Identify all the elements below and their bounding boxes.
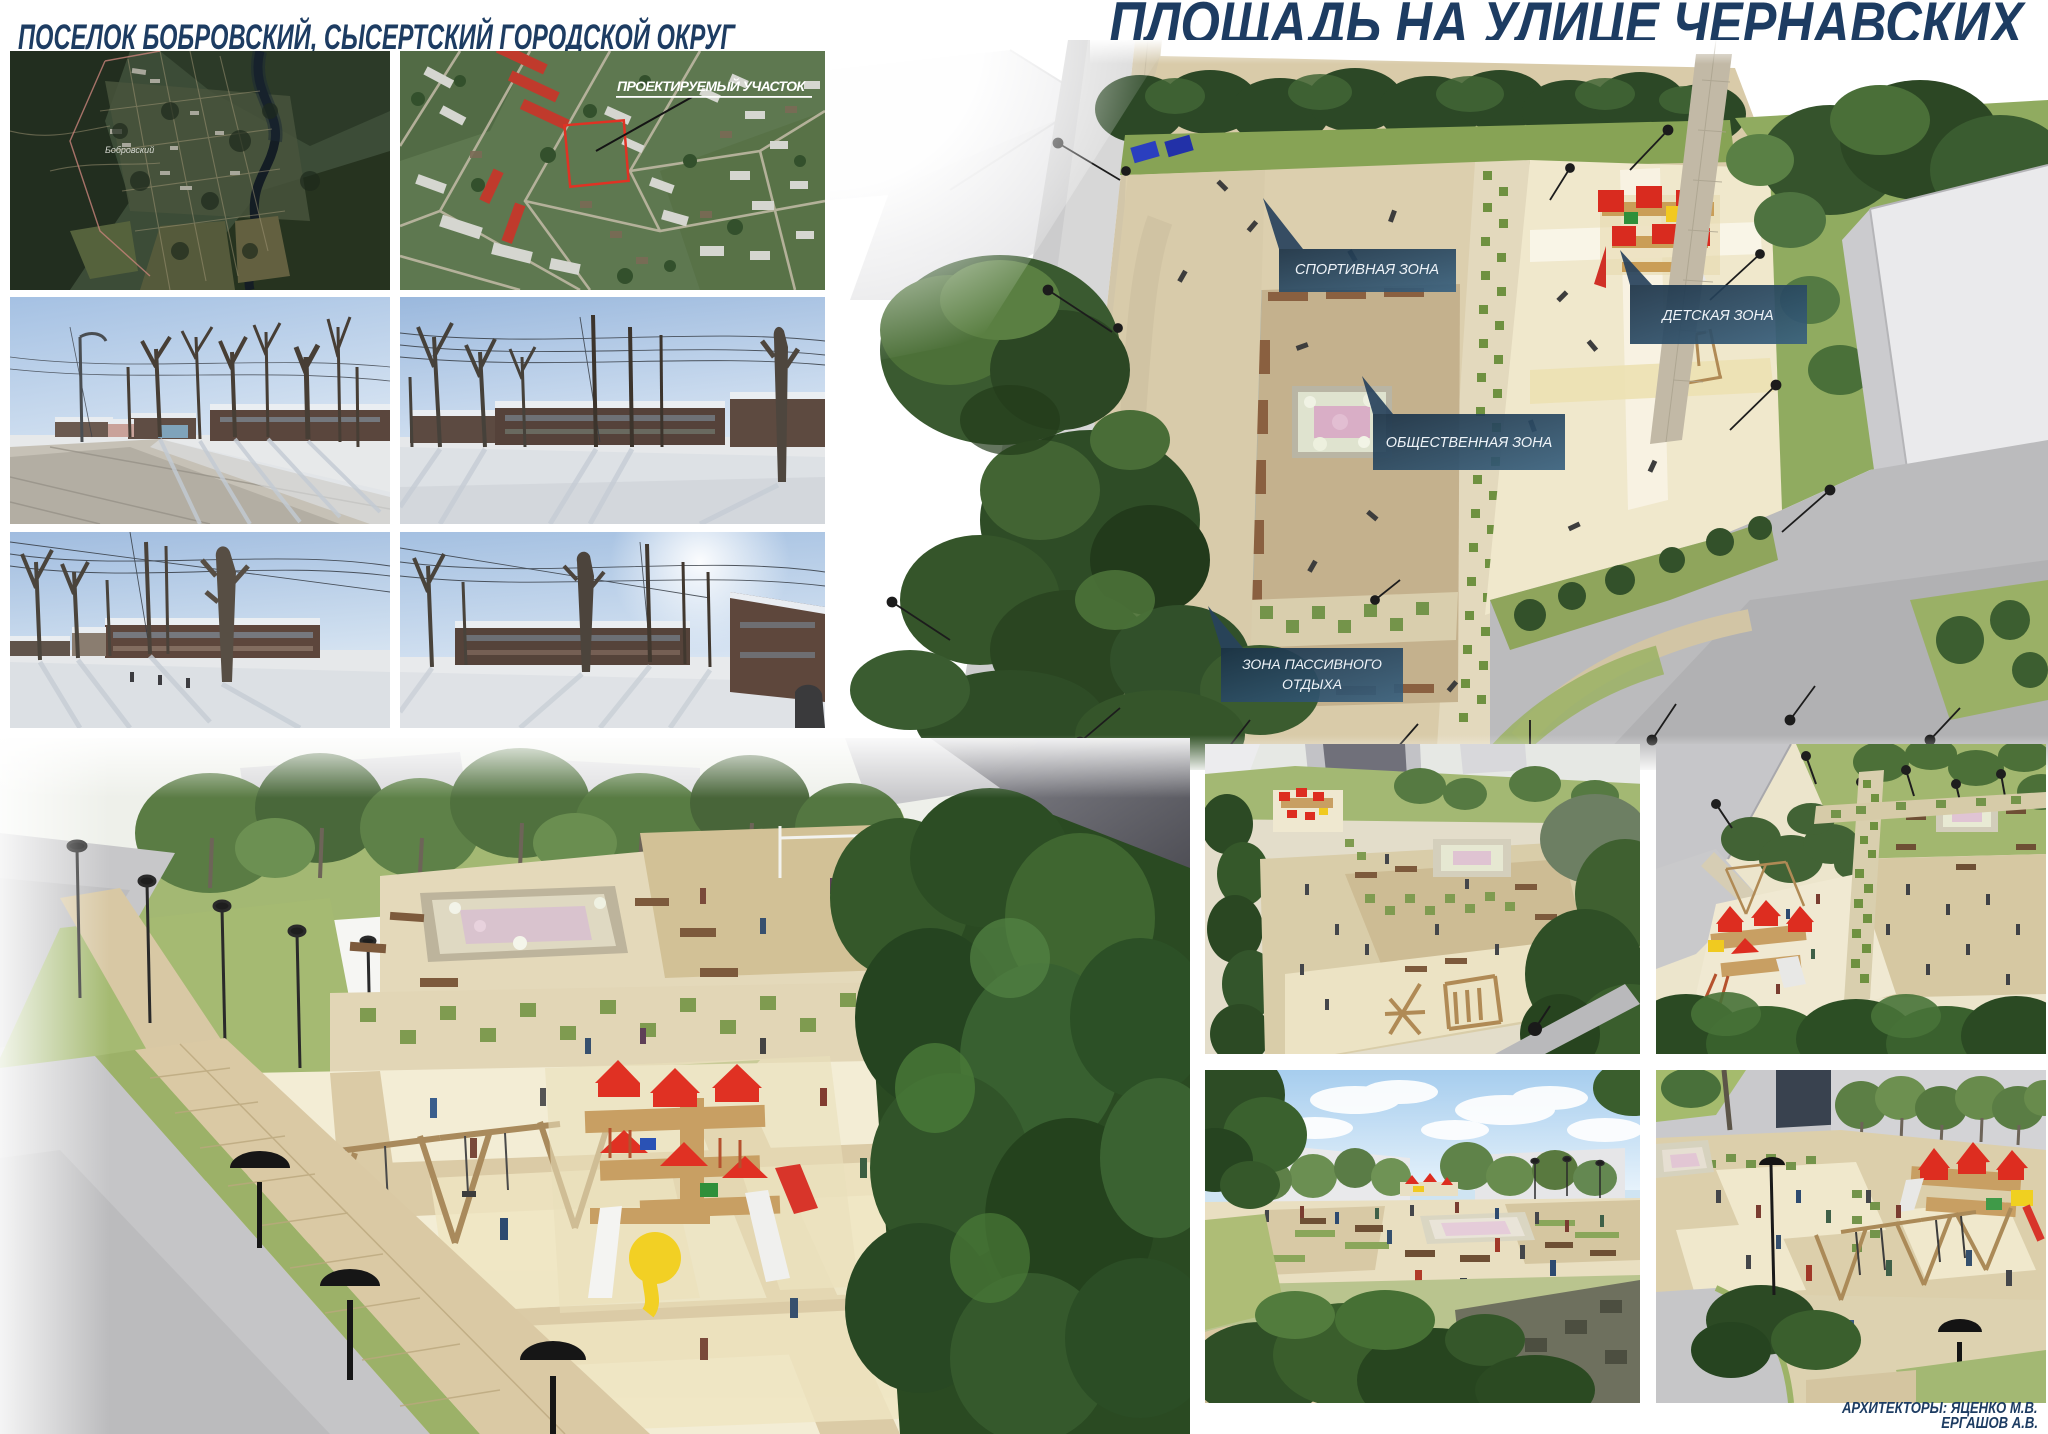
svg-text:ЗОНА ПАССИВНОГО: ЗОНА ПАССИВНОГО [1242, 656, 1382, 672]
svg-text:Бобровский: Бобровский [105, 145, 154, 155]
svg-text:ПРОЕКТИРУЕМЫЙ УЧАСТОК: ПРОЕКТИРУЕМЫЙ УЧАСТОК [617, 77, 806, 94]
svg-text:ДЕТСКАЯ ЗОНА: ДЕТСКАЯ ЗОНА [1660, 308, 1773, 324]
svg-text:ОБЩЕСТВЕННАЯ ЗОНА: ОБЩЕСТВЕННАЯ ЗОНА [1386, 435, 1553, 451]
svg-text:СПОРТИВНАЯ ЗОНА: СПОРТИВНАЯ ЗОНА [1295, 262, 1439, 278]
svg-text:ОТДЫХА: ОТДЫХА [1282, 676, 1342, 692]
